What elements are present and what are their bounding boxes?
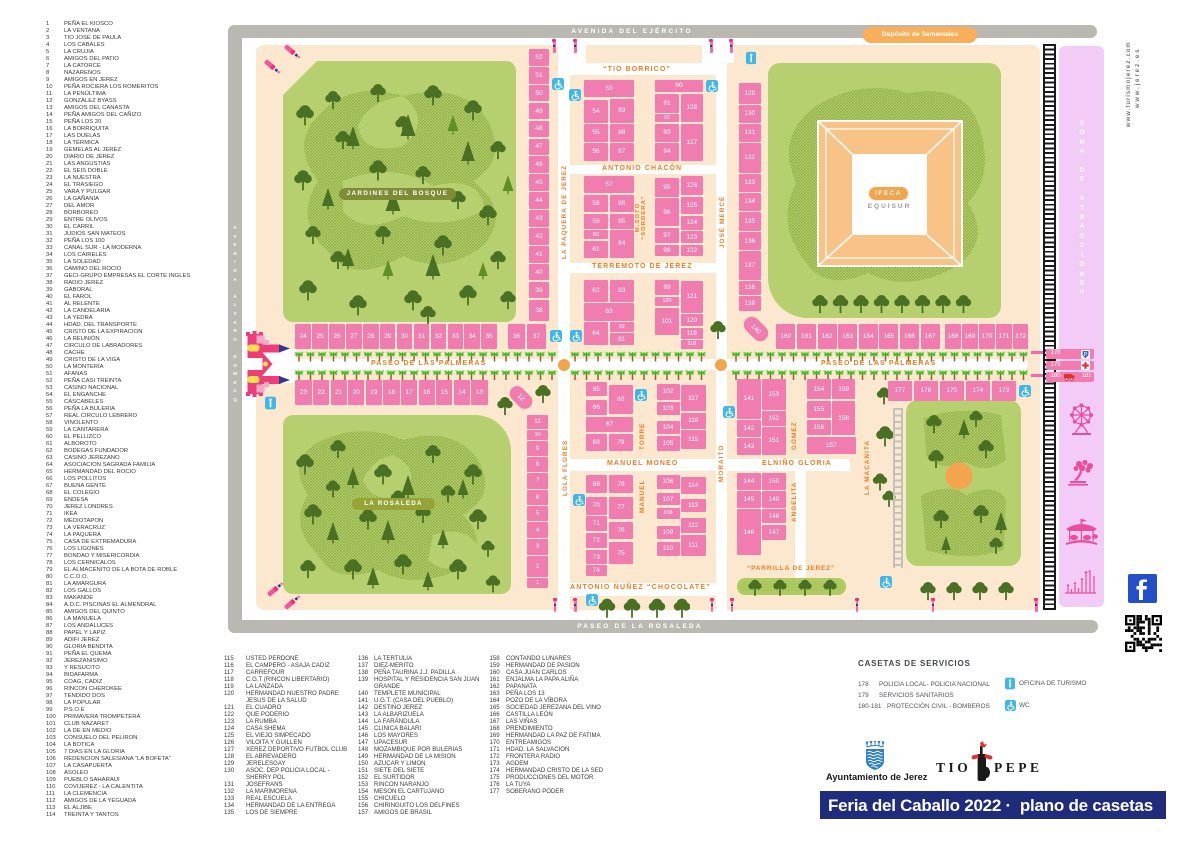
svg-text:P: P <box>1084 352 1088 358</box>
